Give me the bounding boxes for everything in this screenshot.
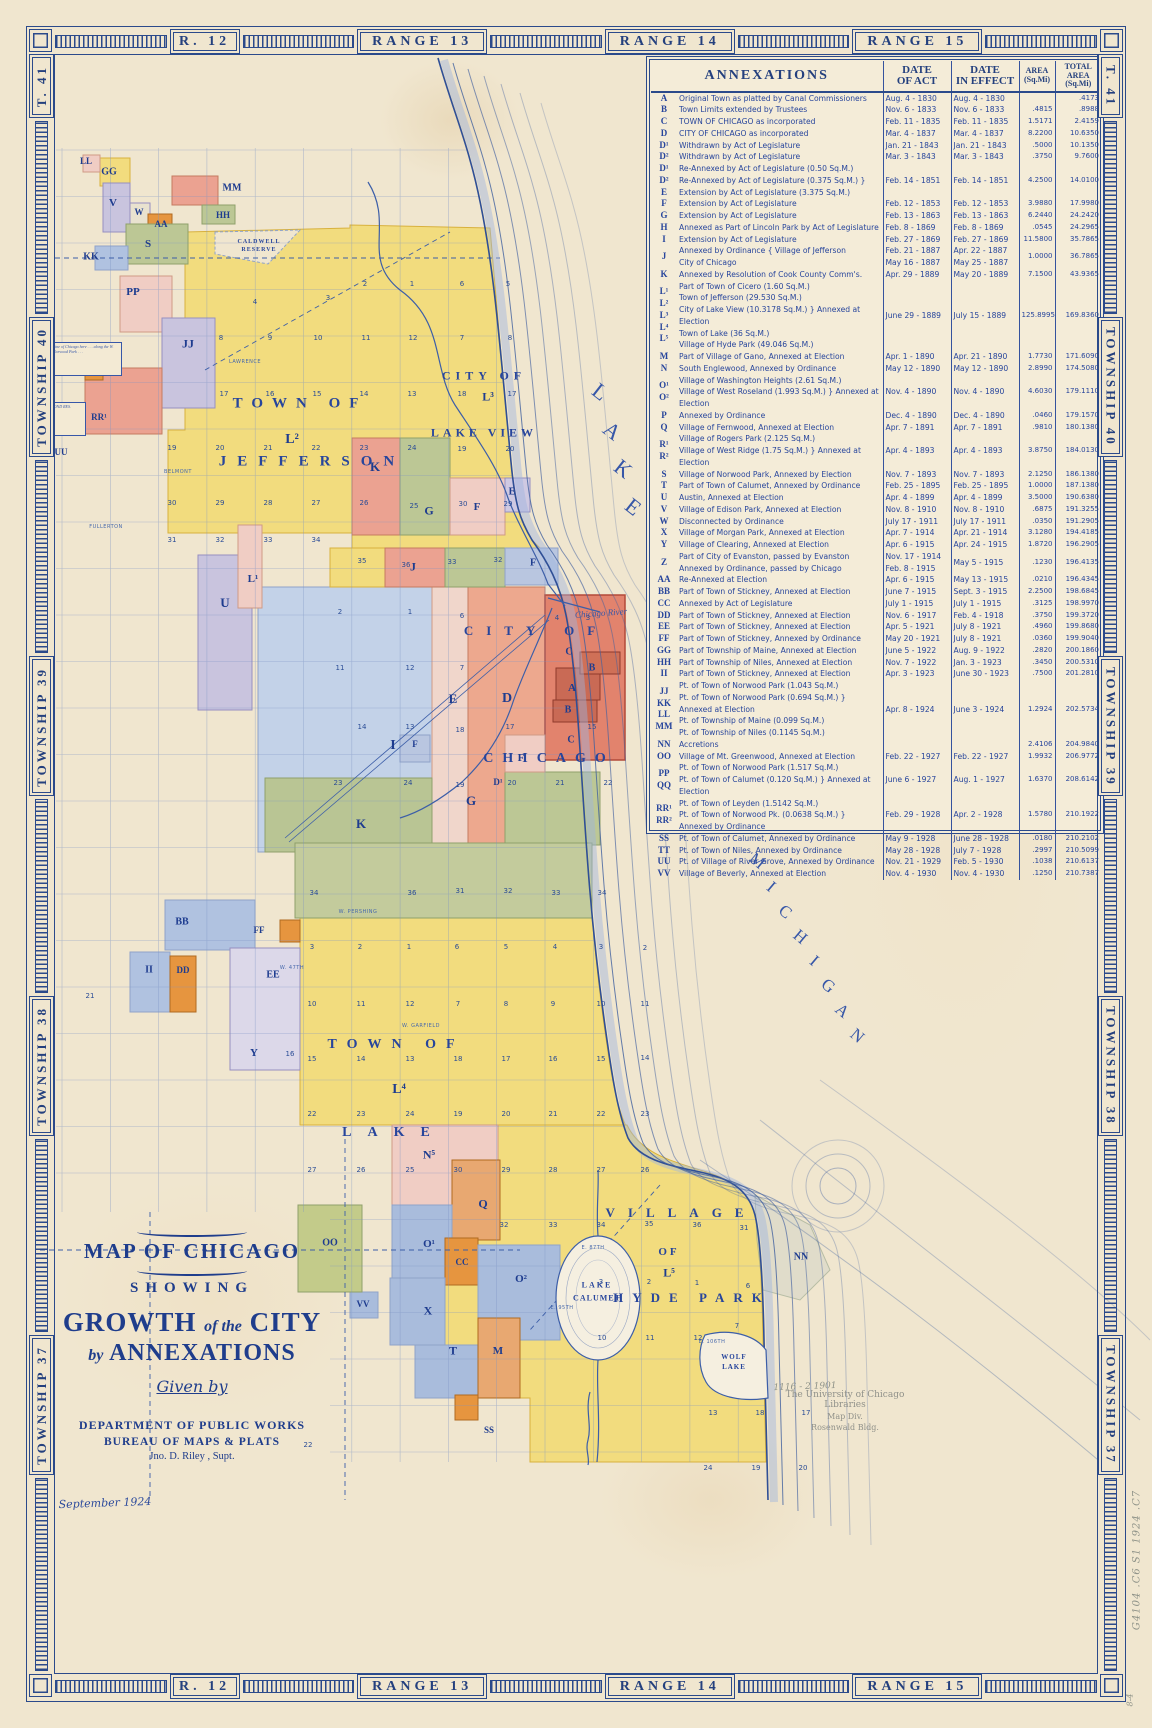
border-label-text: T. 41 bbox=[1103, 65, 1119, 107]
border-label: RANGE 14 bbox=[605, 29, 735, 54]
corner-ornament bbox=[29, 1674, 52, 1697]
border-label: TOWNSHIP 40 bbox=[1098, 317, 1123, 457]
border-label-text: TOWNSHIP 40 bbox=[1103, 327, 1119, 447]
border-label-text: TOWNSHIP 37 bbox=[34, 1345, 50, 1465]
border-label: TOWNSHIP 37 bbox=[29, 1335, 54, 1475]
border-hatch bbox=[35, 1478, 48, 1671]
border-label: TOWNSHIP 39 bbox=[29, 656, 54, 796]
border-label: RANGE 13 bbox=[357, 29, 487, 54]
map-sheet: TOWN OFJEFFERSONL²CITY OFL³LAKE VIEWCITY… bbox=[0, 0, 1152, 1728]
border-label-text: TOWNSHIP 39 bbox=[1103, 667, 1119, 787]
border-label-text: TOWNSHIP 37 bbox=[1103, 1345, 1119, 1465]
border-label-text: TOWNSHIP 40 bbox=[34, 327, 50, 447]
border-hatch bbox=[1104, 799, 1117, 992]
border-hatch bbox=[985, 35, 1097, 48]
border-hatch bbox=[1104, 1478, 1117, 1671]
border-band-top: R. 12RANGE 13RANGE 14RANGE 15 bbox=[29, 29, 1123, 54]
border-label: R. 12 bbox=[170, 29, 240, 54]
border-label: TOWNSHIP 38 bbox=[1098, 996, 1123, 1136]
border-label: T. 41 bbox=[1098, 54, 1123, 118]
border-hatch bbox=[243, 1680, 355, 1693]
border-hatch bbox=[243, 35, 355, 48]
border-hatch bbox=[1104, 460, 1117, 653]
border-label: T. 41 bbox=[29, 54, 54, 118]
border-hatch bbox=[1104, 1139, 1117, 1332]
border-label: R. 12 bbox=[170, 1674, 240, 1699]
border-hatch bbox=[738, 1680, 850, 1693]
corner-ornament bbox=[29, 29, 52, 52]
border-label: RANGE 14 bbox=[605, 1674, 735, 1699]
border-label: TOWNSHIP 38 bbox=[29, 996, 54, 1136]
border-hatch bbox=[35, 1139, 48, 1332]
border-hatch bbox=[490, 1680, 602, 1693]
border-hatch bbox=[490, 35, 602, 48]
border-label-text: TOWNSHIP 39 bbox=[34, 667, 50, 787]
border-label-text: T. 41 bbox=[34, 65, 50, 107]
border-band-bottom: R. 12RANGE 13RANGE 14RANGE 15 bbox=[29, 1674, 1123, 1699]
map-label: G4104 .C6 S1 1924 .C7 bbox=[1132, 1490, 1143, 1630]
border-hatch bbox=[738, 35, 850, 48]
border-hatch bbox=[55, 35, 167, 48]
border-label: TOWNSHIP 37 bbox=[1098, 1335, 1123, 1475]
border-hatch bbox=[35, 460, 48, 653]
border-hatch bbox=[35, 799, 48, 992]
border-label: RANGE 15 bbox=[852, 1674, 982, 1699]
border-label: TOWNSHIP 39 bbox=[1098, 656, 1123, 796]
border-label: RANGE 15 bbox=[852, 29, 982, 54]
border-hatch bbox=[985, 1680, 1097, 1693]
border-label: RANGE 13 bbox=[357, 1674, 487, 1699]
border-hatch bbox=[1104, 121, 1117, 314]
corner-ornament bbox=[1100, 1674, 1123, 1697]
inner-frame bbox=[54, 54, 1098, 1674]
border-band-right: T. 41TOWNSHIP 40TOWNSHIP 39TOWNSHIP 38TO… bbox=[1098, 54, 1123, 1674]
border-band-left: T. 41TOWNSHIP 40TOWNSHIP 39TOWNSHIP 38TO… bbox=[29, 54, 54, 1674]
border-hatch bbox=[35, 121, 48, 314]
border-hatch bbox=[55, 1680, 167, 1693]
map-label: 8-4 bbox=[1126, 1694, 1135, 1707]
border-label-text: TOWNSHIP 38 bbox=[34, 1006, 50, 1126]
border-label: TOWNSHIP 40 bbox=[29, 317, 54, 457]
corner-ornament bbox=[1100, 29, 1123, 52]
border-label-text: TOWNSHIP 38 bbox=[1103, 1006, 1119, 1126]
